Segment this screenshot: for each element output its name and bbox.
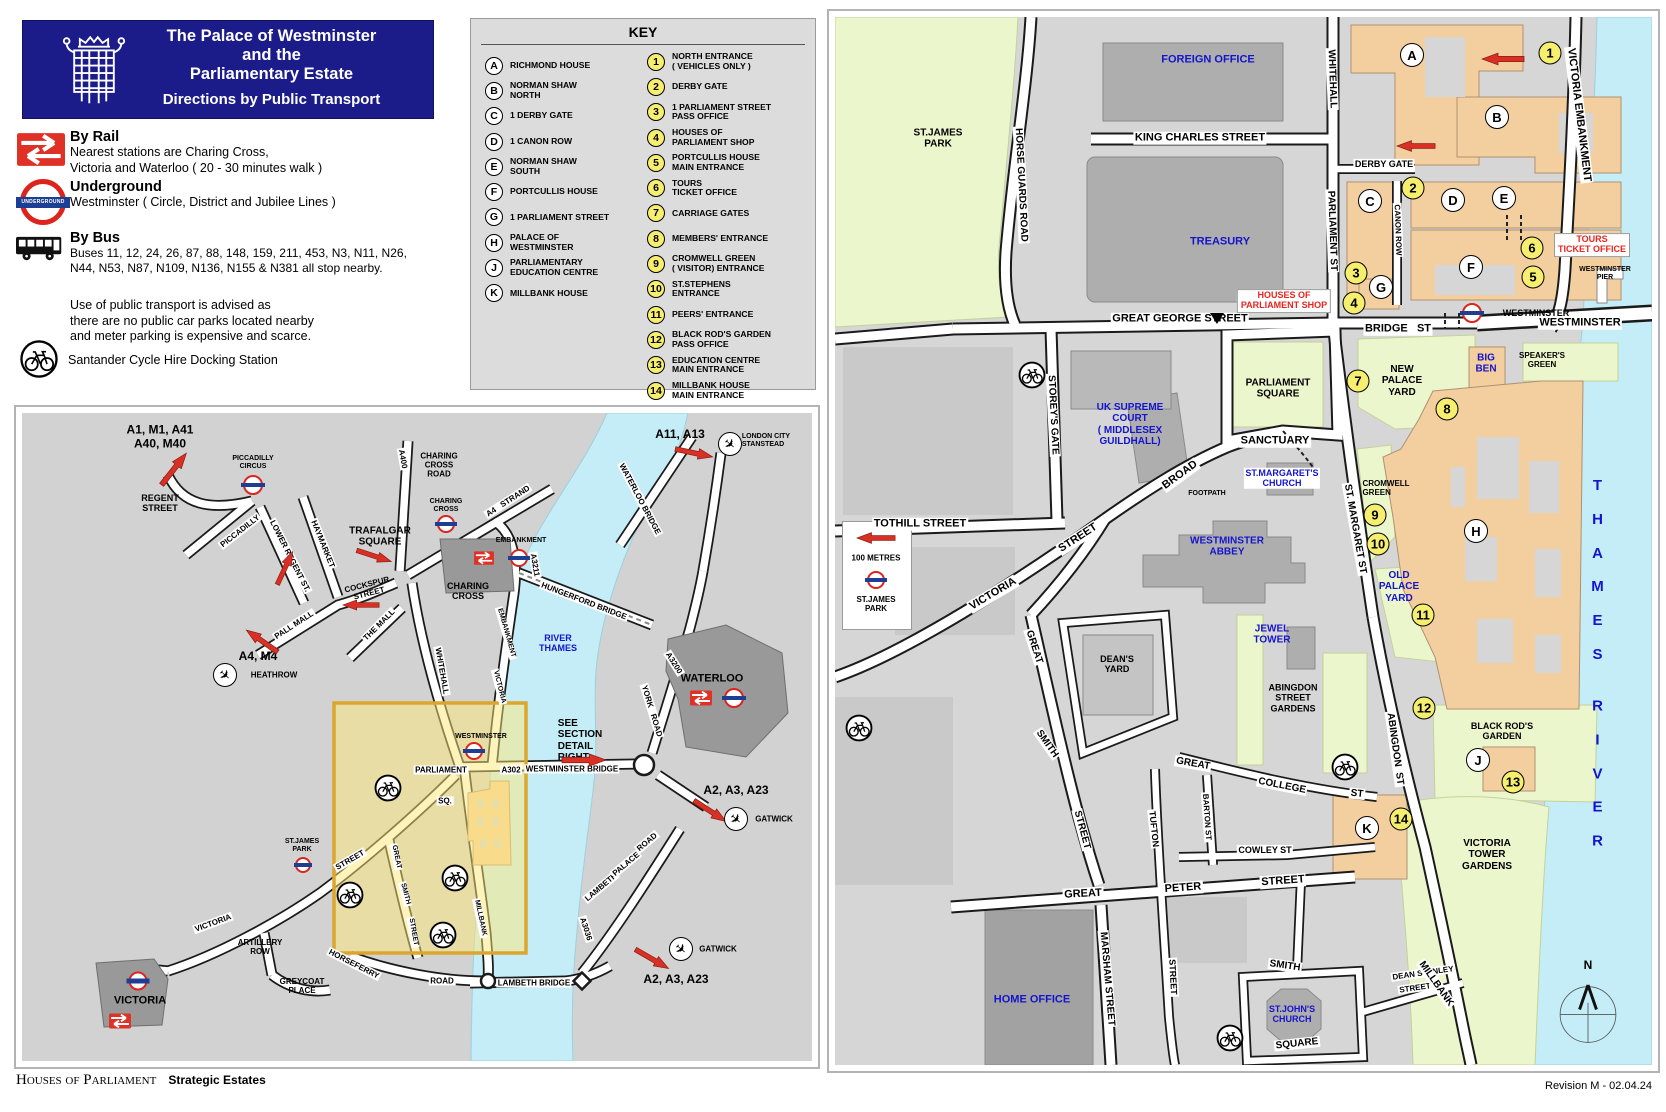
key-item-14: 14MILLBANK HOUSE MAIN ENTRANCE — [647, 378, 815, 403]
key-entrance-badge-10: 10 — [647, 280, 665, 298]
key-building-badge-A: A — [485, 57, 503, 75]
bus-line1: Buses 11, 12, 24, 26, 87, 88, 148, 159, … — [70, 246, 407, 261]
map-label: GATWICK — [755, 814, 793, 823]
building-marker-A: A — [1400, 43, 1424, 67]
key-item-label: MILLBANK HOUSE — [510, 289, 588, 299]
map-label: COWLEY ST — [1237, 845, 1293, 855]
key-building-badge-B: B — [485, 82, 503, 100]
key-item-label: 1 PARLIAMENT STREET — [510, 213, 609, 223]
key-item-12: 12BLACK ROD'S GARDEN PASS OFFICE — [647, 327, 815, 352]
key-entrance-badge-8: 8 — [647, 230, 665, 248]
key-item-B: BNORMAN SHAW NORTH — [485, 78, 645, 103]
map-label: GREYCOAT PLACE — [280, 977, 325, 995]
roundel-icon — [510, 549, 528, 567]
map-label: ST.JAMES PARK — [914, 128, 963, 151]
bus-icon — [16, 234, 68, 261]
key-item-label: NORMAN SHAW SOUTH — [510, 157, 577, 176]
key-entrance-badge-2: 2 — [647, 78, 665, 96]
entrance-marker-1: 1 — [1539, 42, 1562, 65]
map-label: ST.JAMES PARK — [856, 595, 895, 613]
building-marker-B: B — [1485, 105, 1509, 129]
building-marker-C: C — [1358, 189, 1382, 213]
building-marker-F: F — [1459, 255, 1483, 279]
map-label: PARLIAMENT — [414, 765, 469, 774]
roundel-icon — [867, 571, 885, 589]
map-label: WESTMINSTER — [1538, 317, 1622, 330]
map-label: VICTORIA TOWER GARDENS — [1462, 838, 1512, 872]
arrow-icon — [1481, 52, 1525, 65]
map-label: RIVER THAMES — [539, 633, 577, 654]
poster-subtitle: Directions by Public Transport — [118, 91, 425, 108]
map-label: HOUSES OF PARLIAMENT SHOP — [1237, 289, 1331, 313]
key-building-badge-J: J — [485, 259, 503, 277]
key-item-label: PORTCULLIS HOUSE — [510, 187, 598, 197]
key-item-label: 1 PARLIAMENT STREET PASS OFFICE — [672, 103, 771, 122]
key-entrance-badge-14: 14 — [647, 382, 665, 400]
title-line2: and the — [118, 46, 425, 65]
map-label: FOREIGN OFFICE — [1161, 54, 1255, 67]
map-label: BIG BEN — [1475, 353, 1496, 376]
rail-line1: Nearest stations are Charing Cross, — [70, 145, 322, 161]
map-label: GREAT GEORGE STREET — [1111, 313, 1249, 326]
arrow-icon — [156, 449, 192, 490]
roundel-icon — [724, 688, 744, 708]
key-item-label: BLACK ROD'S GARDEN PASS OFFICE — [672, 330, 771, 349]
map-label: R I V E R — [1592, 690, 1604, 859]
map-label: VICTORIA — [114, 995, 166, 1008]
bus-title: By Bus — [70, 230, 407, 246]
parking-advisory: Use of public transport is advised as th… — [70, 298, 314, 345]
cycle-icon — [846, 715, 873, 742]
rail-line2: Victoria and Waterloo ( 20 - 30 minutes … — [70, 161, 322, 177]
roundel-icon — [243, 475, 263, 495]
roundel-icon — [1462, 303, 1482, 323]
building-marker-E: E — [1492, 186, 1516, 210]
map-label: A11, A13 — [655, 428, 705, 442]
map-label: A2, A3, A23 — [703, 784, 768, 798]
key-item-13: 13EDUCATION CENTRE MAIN ENTRANCE — [647, 353, 815, 378]
map-label: HOME OFFICE — [994, 994, 1070, 1007]
key-entrance-badge-12: 12 — [647, 331, 665, 349]
map-label: REGENT STREET — [141, 493, 179, 514]
key-item-label: NORMAN SHAW NORTH — [510, 81, 577, 100]
cycle-icon — [375, 775, 402, 802]
map-label: ABINGDON STREET GARDENS — [1269, 683, 1318, 714]
map-label: ROAD — [429, 976, 456, 985]
map-label: GATWICK — [699, 944, 737, 953]
map-label: LAMBETH BRIDGE — [496, 978, 571, 987]
map-label: A2, A3, A23 — [643, 973, 708, 987]
key-item-F: FPORTCULLIS HOUSE — [485, 179, 645, 204]
key-item-E: ENORMAN SHAW SOUTH — [485, 154, 645, 179]
key-item-label: MEMBERS' ENTRANCE — [672, 234, 768, 244]
building-marker-G: G — [1369, 275, 1393, 299]
key-item-label: TOURS TICKET OFFICE — [672, 179, 737, 198]
map-label: EMBANKMENT — [496, 537, 547, 545]
key-item-label: PALACE OF WESTMINSTER — [510, 233, 574, 252]
key-item-7: 7CARRIAGE GATES — [647, 201, 815, 226]
entrance-marker-13: 13 — [1502, 771, 1525, 794]
key-entrance-badge-5: 5 — [647, 154, 665, 172]
cycle-icon — [430, 922, 457, 949]
map-label: HEATHROW — [251, 670, 298, 679]
map-label: GREAT — [1062, 887, 1103, 902]
arrow-icon — [561, 753, 607, 767]
map-label: ARTILLERY ROW — [238, 938, 283, 956]
map-label: SPEAKER'S GREEN — [1519, 351, 1565, 369]
map-key-panel: KEY ARICHMOND HOUSEBNORMAN SHAW NORTHC1 … — [470, 18, 816, 390]
cycle-icon — [1019, 362, 1046, 389]
map-label: SQ. — [437, 796, 454, 805]
key-item-label: CARRIAGE GATES — [672, 209, 749, 219]
key-item-label: EDUCATION CENTRE MAIN ENTRANCE — [672, 356, 760, 375]
key-item-label: 1 DERBY GATE — [510, 111, 573, 121]
key-item-label: MILLBANK HOUSE MAIN ENTRANCE — [672, 381, 750, 400]
cycle-hire-icon — [20, 340, 58, 378]
key-item-label: DERBY GATE — [672, 82, 728, 92]
map-label: ST — [1349, 788, 1366, 801]
roundel-icon — [437, 515, 455, 533]
map-label: CROMWELL GREEN — [1362, 479, 1409, 497]
key-item-K: KMILLBANK HOUSE — [485, 281, 645, 306]
key-item-label: 1 CANON ROW — [510, 137, 572, 147]
map-label: ST.MARGARET'S CHURCH — [1244, 468, 1320, 489]
advisory-line2: there are no public car parks located ne… — [70, 314, 314, 330]
tube-title: Underground — [70, 179, 336, 195]
tri-icon — [1210, 324, 1224, 342]
underground-roundel-text: UNDERGROUND — [16, 197, 70, 208]
key-building-badge-H: H — [485, 234, 503, 252]
map-label: OLD PALACE YARD — [1379, 570, 1419, 604]
map-label: BLACK ROD'S GARDEN — [1471, 721, 1533, 742]
map-label: WESTMINSTER PIER — [1579, 266, 1631, 282]
map-label: A1, M1, A41 A40, M40 — [127, 423, 194, 450]
key-item-H: HPALACE OF WESTMINSTER — [485, 230, 645, 255]
footer-brand: Houses of ParliamentStrategic Estates — [16, 1072, 266, 1089]
overview-map: A1, M1, A41 A40, M40REGENT STREETPICCADI… — [14, 405, 820, 1069]
key-item-9: 9CROMWELL GREEN ( VISITOR) ENTRANCE — [647, 251, 815, 276]
poster-root: The Palace of Westminster and the Parlia… — [0, 0, 1666, 1112]
key-entrance-badge-4: 4 — [647, 129, 665, 147]
map-label: CHARING CROSS — [447, 581, 489, 602]
key-item-label: PEERS' ENTRANCE — [672, 310, 753, 320]
key-item-A: ARICHMOND HOUSE — [485, 53, 645, 78]
key-item-11: 11PEERS' ENTRANCE — [647, 302, 815, 327]
footer-brand-name: Houses of Parliament — [16, 1072, 156, 1088]
key-item-2: 2DERBY GATE — [647, 74, 815, 99]
rail-icon — [474, 551, 494, 565]
entrance-marker-4: 4 — [1343, 292, 1366, 315]
key-item-4: 4HOUSES OF PARLIAMENT SHOP — [647, 125, 815, 150]
map-label: SANCTUARY — [1239, 435, 1311, 448]
key-building-badge-F: F — [485, 183, 503, 201]
key-item-label: RICHMOND HOUSE — [510, 61, 590, 71]
rail-icon — [690, 691, 712, 706]
key-entrance-badge-13: 13 — [647, 356, 665, 374]
entrance-marker-3: 3 — [1345, 262, 1368, 285]
map-label: LONDON CITY STANSTEAD — [742, 433, 790, 449]
key-item-C: C1 DERBY GATE — [485, 104, 645, 129]
cycle-icon — [1217, 1025, 1244, 1052]
building-marker-J: J — [1466, 748, 1490, 772]
plane-icon: ✈ — [669, 937, 693, 961]
key-item-3: 31 PARLIAMENT STREET PASS OFFICE — [647, 100, 815, 125]
map-label: T H A M E S — [1591, 469, 1605, 672]
poster-title: The Palace of Westminster and the Parlia… — [118, 27, 425, 108]
title-panel: The Palace of Westminster and the Parlia… — [22, 20, 434, 119]
compass-icon — [1550, 974, 1626, 1050]
key-building-badge-K: K — [485, 284, 503, 302]
cycle-icon — [442, 865, 469, 892]
arrow-icon — [673, 443, 715, 463]
key-item-G: G1 PARLIAMENT STREET — [485, 205, 645, 230]
map-label: A302 — [500, 765, 522, 774]
underground-roundel-icon: UNDERGROUND — [20, 179, 66, 225]
map-label: TOTHILL STREET — [872, 518, 968, 531]
map-label: PICCADILLY CIRCUS — [232, 455, 273, 471]
key-item-label: PARLIAMENTARY EDUCATION CENTRE — [510, 258, 598, 277]
key-building-badge-G: G — [485, 208, 503, 226]
arrow-icon — [632, 944, 673, 974]
key-entrance-badge-6: 6 — [647, 179, 665, 197]
entrance-marker-14: 14 — [1390, 808, 1413, 831]
map-label: DEAN'S YARD — [1100, 654, 1134, 675]
cycle-hire-note: Santander Cycle Hire Docking Station — [68, 353, 278, 369]
map-label: WESTMINSTER ABBEY — [1190, 536, 1264, 559]
advisory-line3: and meter parking is expensive and scarc… — [70, 329, 314, 345]
key-entrance-badge-1: 1 — [647, 53, 665, 71]
map-label: ST.JAMES PARK — [285, 838, 319, 854]
key-entrances-list: 1NORTH ENTRANCE ( VEHICLES ONLY )2DERBY … — [647, 49, 815, 403]
arrow-icon — [342, 599, 380, 610]
roundel-icon — [129, 972, 148, 991]
map-label: CANON ROW — [1393, 203, 1404, 257]
key-item-D: D1 CANON ROW — [485, 129, 645, 154]
roundel-icon — [295, 857, 311, 873]
map-label: ST.JOHN'S CHURCH — [1269, 1004, 1315, 1025]
key-building-badge-E: E — [485, 158, 503, 176]
key-title: KEY — [481, 24, 805, 45]
map-label: KING CHARLES STREET — [1133, 132, 1266, 145]
map-label: NEW PALACE YARD — [1382, 364, 1422, 398]
map-label: CHARING CROSS — [430, 498, 463, 514]
map-label: WHITEHALL — [1325, 48, 1339, 110]
map-label: WATERLOO — [681, 673, 744, 686]
key-building-badge-D: D — [485, 133, 503, 151]
rail-title: By Rail — [70, 129, 322, 145]
arrow-icon — [856, 532, 896, 544]
map-label: CHARING CROSS ROAD — [420, 451, 457, 478]
building-marker-D: D — [1441, 188, 1465, 212]
map-label: N — [1584, 959, 1593, 973]
cycle-icon — [337, 882, 364, 909]
map-label: PARLIAMENT SQUARE — [1246, 378, 1311, 401]
footer-dept: Strategic Estates — [168, 1073, 265, 1087]
key-item-label: ST.STEPHENS ENTRANCE — [672, 280, 731, 299]
key-building-badge-C: C — [485, 107, 503, 125]
key-item-label: CROMWELL GREEN ( VISITOR) ENTRANCE — [672, 254, 764, 273]
key-item-label: NORTH ENTRANCE ( VEHICLES ONLY ) — [672, 52, 753, 71]
building-marker-H: H — [1464, 519, 1488, 543]
advisory-line1: Use of public transport is advised as — [70, 298, 314, 314]
map-label: WESTMINSTER — [455, 733, 507, 741]
entrance-marker-6: 6 — [1521, 237, 1544, 260]
key-entrance-badge-3: 3 — [647, 103, 665, 121]
key-item-8: 8MEMBERS' ENTRANCE — [647, 226, 815, 251]
key-entrance-badge-7: 7 — [647, 204, 665, 222]
entrance-marker-8: 8 — [1436, 398, 1459, 421]
key-buildings-list: ARICHMOND HOUSEBNORMAN SHAW NORTHC1 DERB… — [485, 53, 645, 306]
building-marker-K: K — [1355, 816, 1379, 840]
map-label: JEWEL TOWER — [1253, 624, 1290, 647]
map-label: UK SUPREME COURT ( MIDDLESEX GUILDHALL) — [1097, 402, 1164, 448]
plane-icon: ✈ — [718, 432, 742, 456]
entrance-marker-12: 12 — [1413, 697, 1436, 720]
entrance-marker-2: 2 — [1402, 177, 1425, 200]
key-item-1: 1NORTH ENTRANCE ( VEHICLES ONLY ) — [647, 49, 815, 74]
underground-info: Underground Westminster ( Circle, Distri… — [70, 179, 336, 211]
key-item-J: JPARLIAMENTARY EDUCATION CENTRE — [485, 255, 645, 280]
key-item-6: 6TOURS TICKET OFFICE — [647, 175, 815, 200]
bus-line2: N44, N53, N87, N109, N136, N155 & N381 a… — [70, 261, 407, 276]
rail-icon — [109, 1014, 131, 1029]
key-item-5: 5PORTCULLIS HOUSE MAIN ENTRANCE — [647, 150, 815, 175]
title-line1: The Palace of Westminster — [118, 27, 425, 46]
roundel-icon — [465, 742, 483, 760]
key-entrance-badge-9: 9 — [647, 255, 665, 273]
detail-map: FOREIGN OFFICEST.JAMES PARKHORSE GUARDS … — [827, 9, 1660, 1073]
rail-icon — [17, 133, 65, 166]
entrance-marker-7: 7 — [1347, 370, 1370, 393]
map-label: 100 METRES — [852, 553, 901, 562]
map-label: TOURS TICKET OFFICE — [1554, 233, 1630, 257]
entrance-marker-10: 10 — [1367, 533, 1390, 556]
bus-info: By Bus Buses 11, 12, 24, 26, 87, 88, 148… — [70, 230, 407, 276]
map-label: TREASURY — [1190, 236, 1250, 249]
plane-icon: ✈ — [724, 807, 748, 831]
entrance-marker-11: 11 — [1412, 604, 1435, 627]
key-item-10: 10ST.STEPHENS ENTRANCE — [647, 277, 815, 302]
rail-info: By Rail Nearest stations are Charing Cro… — [70, 129, 322, 176]
key-item-label: HOUSES OF PARLIAMENT SHOP — [672, 128, 754, 147]
tube-line: Westminster ( Circle, District and Jubil… — [70, 195, 336, 211]
map-label: FOOTPATH — [1188, 490, 1225, 498]
map-label: BRIDGE ST — [1363, 323, 1432, 336]
cycle-icon — [1332, 754, 1359, 781]
map-label: DERBY GATE — [1353, 159, 1414, 169]
entrance-marker-9: 9 — [1364, 504, 1387, 527]
map-label: STREET — [1167, 958, 1179, 997]
title-line3: Parliamentary Estate — [118, 65, 425, 84]
key-entrance-badge-11: 11 — [647, 306, 665, 324]
footer-revision: Revision M - 02.04.24 — [1545, 1080, 1652, 1092]
plane-icon: ✈ — [213, 663, 237, 687]
entrance-marker-5: 5 — [1522, 266, 1545, 289]
arrow-icon — [1396, 140, 1436, 152]
key-item-label: PORTCULLIS HOUSE MAIN ENTRANCE — [672, 153, 760, 172]
